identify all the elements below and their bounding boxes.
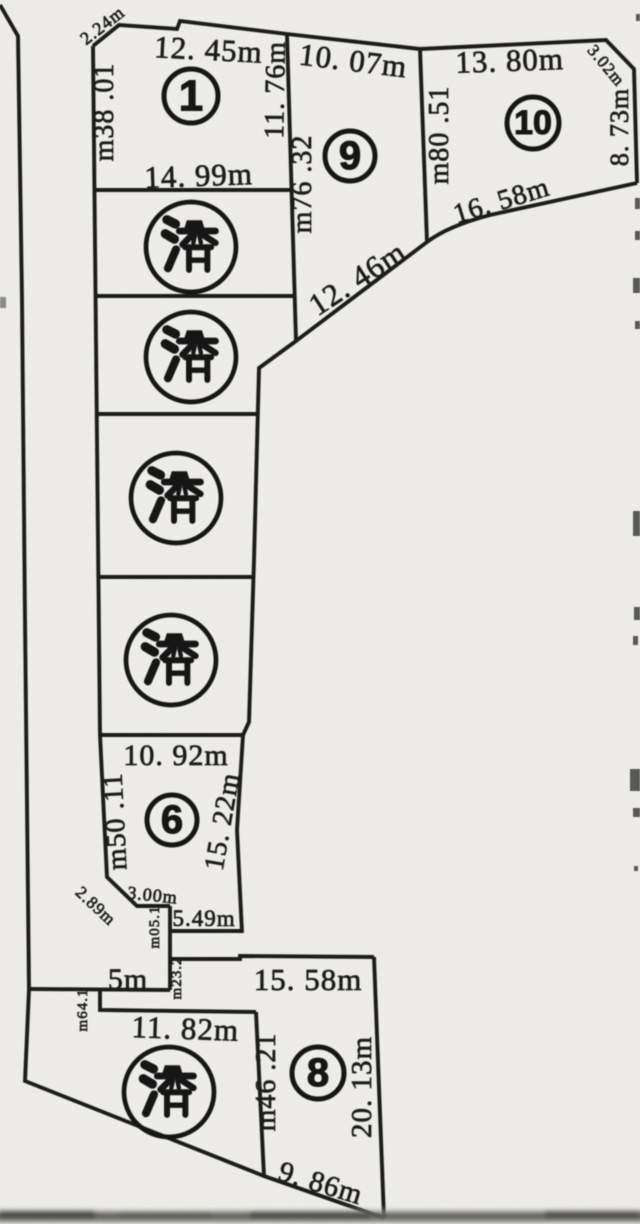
svg-text:12. 45m: 12. 45m	[153, 29, 263, 70]
svg-text:13. 80m: 13. 80m	[455, 41, 565, 80]
svg-text:5m: 5m	[108, 963, 148, 996]
svg-text:8. 73m: 8. 73m	[605, 88, 634, 166]
svg-text:1: 1	[179, 72, 203, 121]
svg-text:m46 .21: m46 .21	[251, 1033, 282, 1132]
svg-text:5.49m: 5.49m	[172, 906, 235, 931]
svg-text:8: 8	[307, 1051, 329, 1095]
svg-text:m76 .32: m76 .32	[287, 135, 318, 234]
svg-text:10: 10	[514, 104, 552, 142]
svg-text:11. 82m: 11. 82m	[131, 1009, 240, 1048]
svg-text:10. 92m: 10. 92m	[123, 739, 228, 772]
svg-text:9: 9	[339, 134, 361, 178]
svg-text:m23.2: m23.2	[169, 957, 185, 1000]
svg-text:14. 99m: 14. 99m	[144, 156, 254, 195]
svg-text:6: 6	[161, 798, 183, 842]
svg-text:m64.1: m64.1	[75, 989, 91, 1032]
svg-text:20. 13m: 20. 13m	[346, 1036, 378, 1138]
svg-text:15. 58m: 15. 58m	[254, 962, 363, 997]
svg-text:m50 .11: m50 .11	[97, 772, 133, 871]
svg-text:m38 .01: m38 .01	[89, 63, 120, 162]
svg-text:m80 .51: m80 .51	[424, 86, 455, 185]
svg-text:11. 76m: 11. 76m	[259, 41, 292, 139]
svg-text:m05.1: m05.1	[147, 906, 163, 949]
